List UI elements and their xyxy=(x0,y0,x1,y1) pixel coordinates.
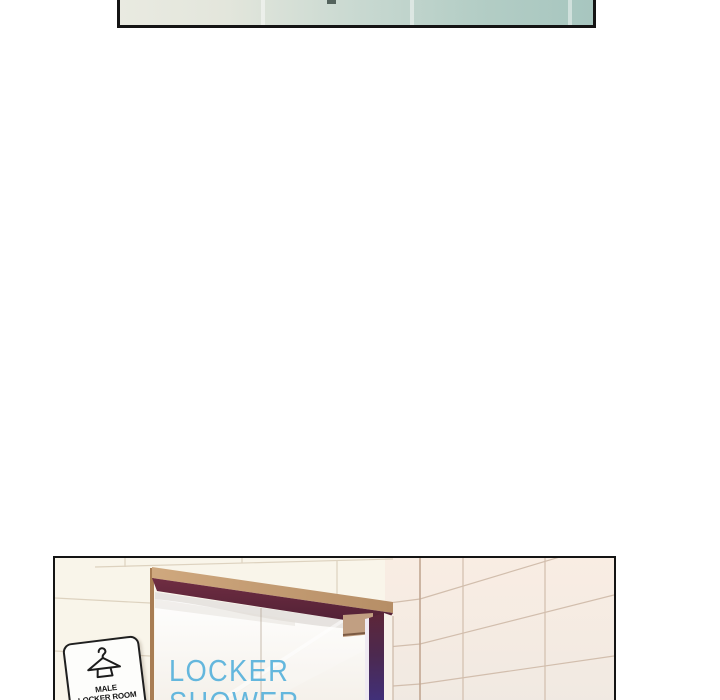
fixture-mark-icon xyxy=(327,0,336,4)
door-frame-left-edge xyxy=(150,568,154,700)
tile-grout-line xyxy=(568,0,572,25)
door-frame-right-bar xyxy=(369,613,384,700)
panel-bottom: LOCKER SHOWER MALE LOCKER ROOM xyxy=(53,556,616,700)
comic-page: LOCKER SHOWER MALE LOCKER ROOM xyxy=(0,0,720,700)
glass-edge-highlight xyxy=(365,618,369,700)
hanger-icon xyxy=(82,644,124,680)
tile-grout-line xyxy=(410,0,414,25)
glass-door-text-line1: LOCKER xyxy=(169,655,300,687)
glass-door-text-line2: SHOWER xyxy=(169,687,300,700)
door-jamb xyxy=(384,613,393,700)
locker-room-sign: MALE LOCKER ROOM xyxy=(62,635,150,700)
panel-top xyxy=(117,0,596,28)
glass-door-text: LOCKER SHOWER xyxy=(169,655,300,700)
tile-grout-line xyxy=(261,0,265,25)
